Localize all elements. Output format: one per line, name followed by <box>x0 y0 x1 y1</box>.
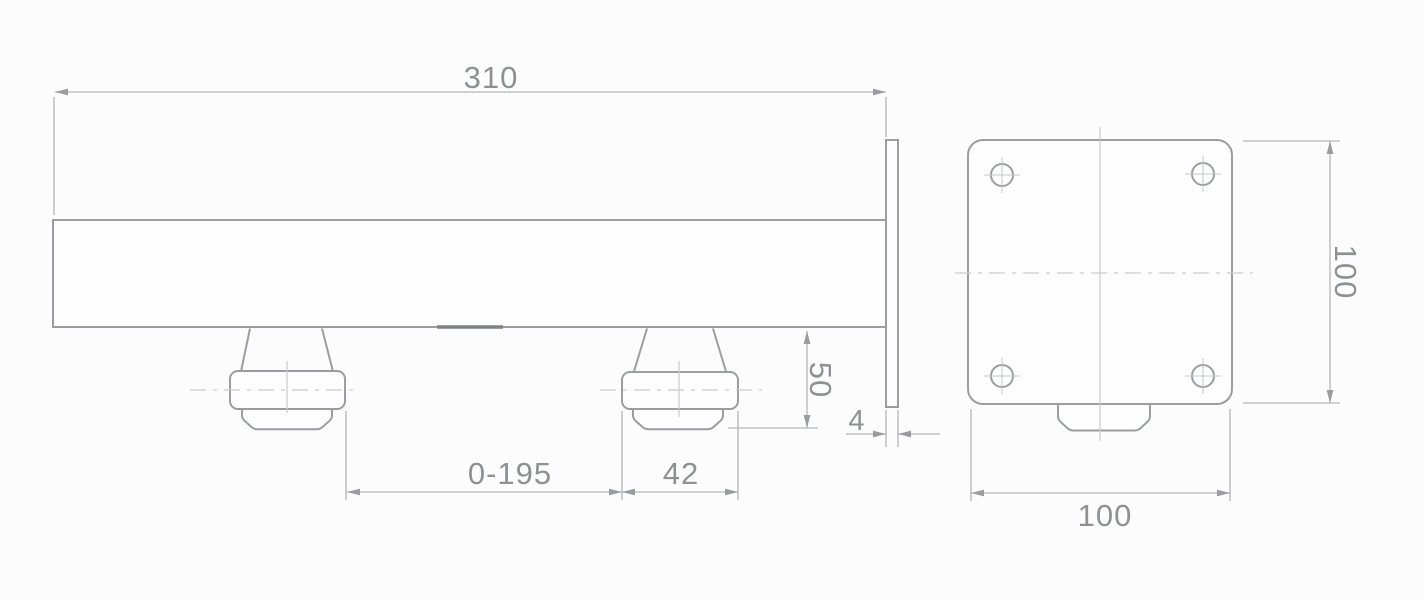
arrowhead <box>804 415 811 428</box>
arrowhead <box>873 431 886 438</box>
end-plate-edge <box>886 140 898 407</box>
arrowhead <box>609 489 622 496</box>
stem-left-edge <box>241 329 250 372</box>
arrowhead <box>873 89 886 96</box>
dim-plate-thickness: 4 <box>846 405 940 447</box>
dim-label-roller-width: 42 <box>663 456 699 491</box>
arrowhead <box>347 489 360 496</box>
technical-drawing: 310 50 4 <box>0 0 1424 600</box>
arrowhead <box>898 431 911 438</box>
dim-roller-drop: 50 <box>728 331 838 428</box>
arrowhead <box>55 89 68 96</box>
arrowhead <box>622 489 635 496</box>
stem-left-edge <box>634 329 647 372</box>
roller-wheel <box>633 409 723 429</box>
stem-right-edge <box>713 329 726 372</box>
dim-adjust-range: 0-195 <box>346 411 622 500</box>
dim-label-rail-length: 310 <box>464 60 519 95</box>
arrowhead <box>1327 141 1334 154</box>
dim-label-plate-thickness: 4 <box>848 405 865 437</box>
arrowhead <box>1327 390 1334 403</box>
rail-body <box>53 220 886 327</box>
plate-front-view <box>955 127 1253 441</box>
arrowhead <box>725 489 738 496</box>
arrowhead <box>1217 490 1230 497</box>
drawing-canvas: 310 50 4 <box>0 0 1424 600</box>
dim-label-plate-height: 100 <box>1328 245 1363 300</box>
arrowhead <box>804 331 811 344</box>
stem-right-edge <box>322 329 333 372</box>
arrowhead <box>971 490 984 497</box>
dim-label-adjust-range: 0-195 <box>468 456 552 491</box>
dim-label-plate-width: 100 <box>1078 498 1133 533</box>
dim-label-roller-drop: 50 <box>803 362 838 398</box>
dim-rail-length: 310 <box>54 60 886 215</box>
roller-foot-left <box>190 329 357 430</box>
side-view <box>53 140 898 429</box>
dim-plate-height: 100 <box>1243 141 1363 403</box>
